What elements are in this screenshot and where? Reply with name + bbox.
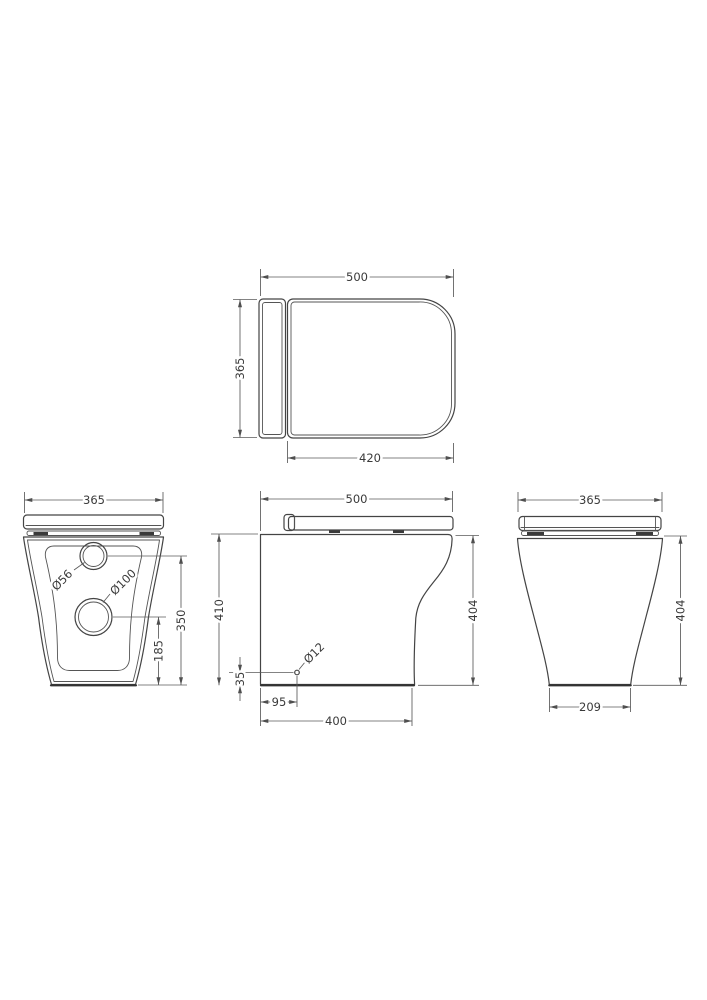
- fixing-hole: [295, 670, 300, 675]
- toilet-dimension-drawing: 500 365 420 Ø56 Ø100: [0, 0, 707, 1000]
- seat-lid-inner-line: [291, 302, 452, 435]
- technical-drawing-sheet: 500 365 420 Ø56 Ø100: [0, 0, 707, 1000]
- seat-lid-side-outline: [289, 517, 454, 531]
- seat-buffer: [527, 532, 544, 535]
- pan-side-profile: [261, 535, 453, 685]
- dim-label-top-width: 500: [346, 270, 368, 284]
- dim-label-outlet-height: 185: [152, 640, 166, 662]
- side-view: Ø12 500 410 404 35 95 400: [211, 491, 480, 728]
- seat-bar-outline: [519, 517, 661, 531]
- back-view: Ø56 Ø100 365 350 185: [24, 492, 189, 685]
- dim-label-base-depth: 400: [325, 714, 347, 728]
- front-view: 365 404 209: [518, 492, 688, 714]
- leader-line: [74, 563, 85, 571]
- back-recess-panel: [45, 546, 141, 671]
- waste-outlet-hole-outer: [75, 599, 112, 636]
- dim-label-inlet-height: 350: [174, 610, 188, 632]
- dim-label-base-width: 209: [579, 700, 601, 714]
- seat-lid-outline: [288, 299, 456, 438]
- water-inlet-hole-outer: [80, 543, 107, 570]
- lid-hinge-strip-outline: [259, 299, 286, 438]
- seat-buffer: [34, 532, 49, 535]
- dim-label-hole-height: 35: [233, 672, 247, 687]
- seat-buffer: [636, 532, 653, 535]
- leader-line: [103, 594, 110, 603]
- dim-label-rear-height: 410: [212, 599, 226, 621]
- pan-body-inner-line: [28, 540, 160, 682]
- seat-bar-outline: [24, 515, 164, 529]
- pan-body-outline: [24, 537, 164, 685]
- dim-label-front-width: 365: [579, 493, 601, 507]
- leader-line: [299, 662, 306, 670]
- dim-label-front-height: 404: [466, 600, 480, 622]
- waste-outlet-hole-inner: [79, 602, 109, 632]
- dim-label-inlet-diameter: Ø56: [49, 567, 76, 594]
- top-view-plan: 500 365 420: [233, 269, 455, 465]
- dim-label-seat-depth: 420: [359, 451, 381, 465]
- seat-buffer: [140, 532, 155, 535]
- seat-buffer: [393, 531, 404, 534]
- dim-label-pan-height: 404: [674, 600, 688, 622]
- pan-front-outline: [518, 539, 663, 685]
- dim-label-top-depth: 365: [233, 358, 247, 380]
- seat-buffer: [329, 531, 340, 534]
- lid-hinge-strip-inner-line: [263, 303, 283, 435]
- water-inlet-hole-inner: [83, 546, 104, 567]
- dim-label-hole-setback: 95: [272, 695, 287, 709]
- dim-label-side-depth: 500: [346, 492, 368, 506]
- dim-label-back-width: 365: [83, 493, 105, 507]
